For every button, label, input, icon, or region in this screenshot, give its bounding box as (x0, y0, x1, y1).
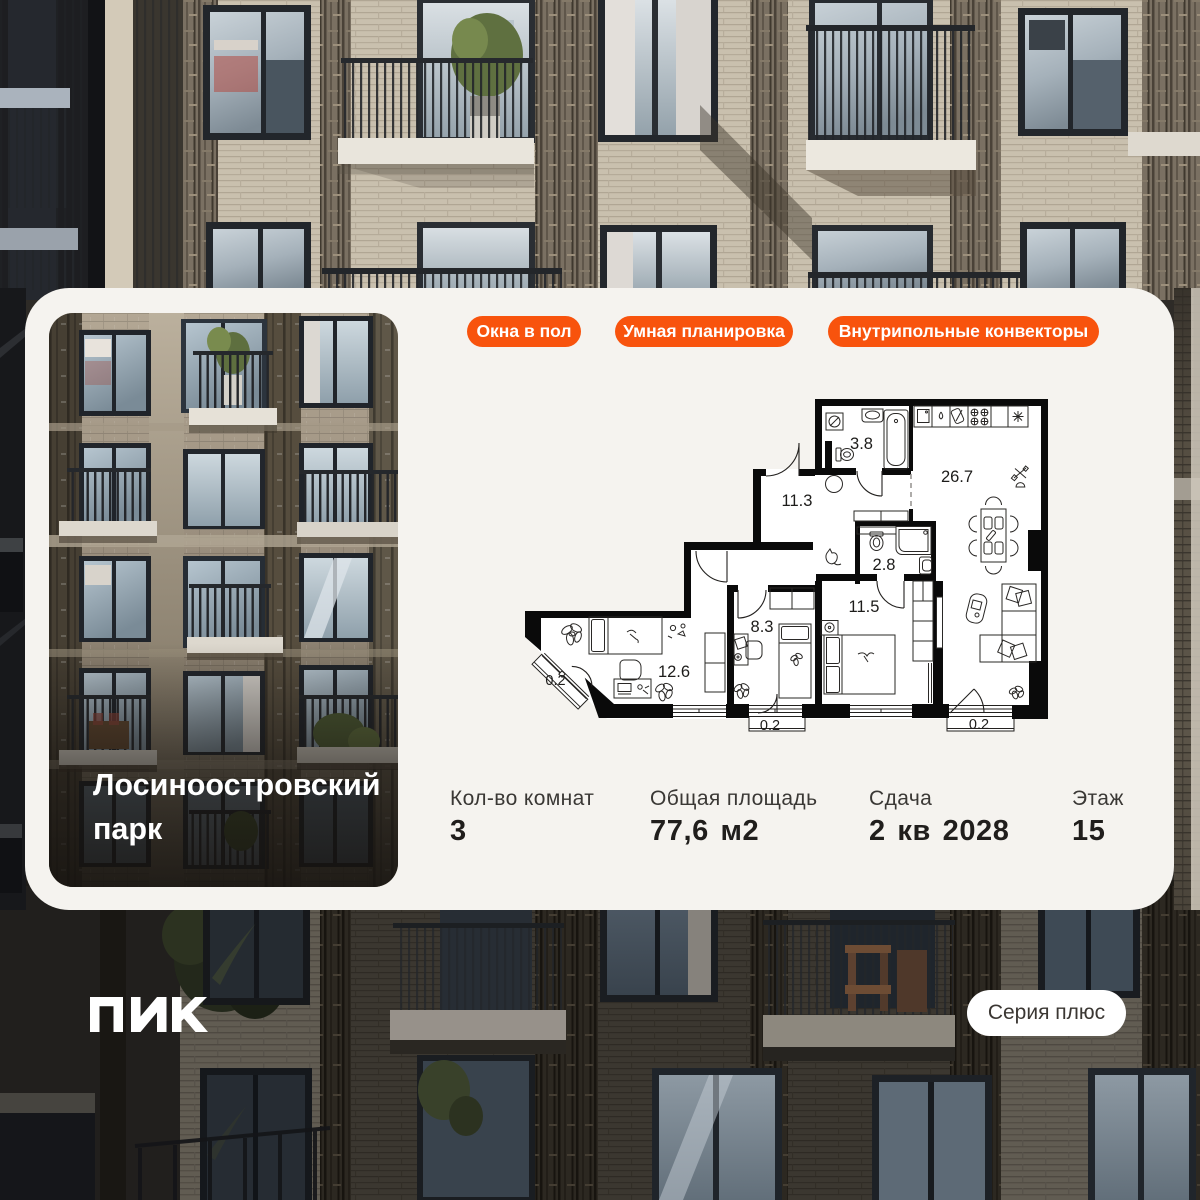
svg-text:0.2: 0.2 (760, 718, 780, 734)
svg-text:12.6: 12.6 (658, 663, 690, 681)
svg-text:26.7: 26.7 (941, 468, 973, 486)
svg-text:3.8: 3.8 (850, 435, 873, 453)
svg-text:8.3: 8.3 (751, 618, 774, 636)
svg-text:11.5: 11.5 (849, 598, 880, 616)
svg-text:11.3: 11.3 (782, 492, 813, 510)
svg-text:2.8: 2.8 (873, 556, 896, 574)
svg-text:0.2: 0.2 (969, 717, 989, 733)
svg-text:0.2: 0.2 (545, 673, 565, 689)
